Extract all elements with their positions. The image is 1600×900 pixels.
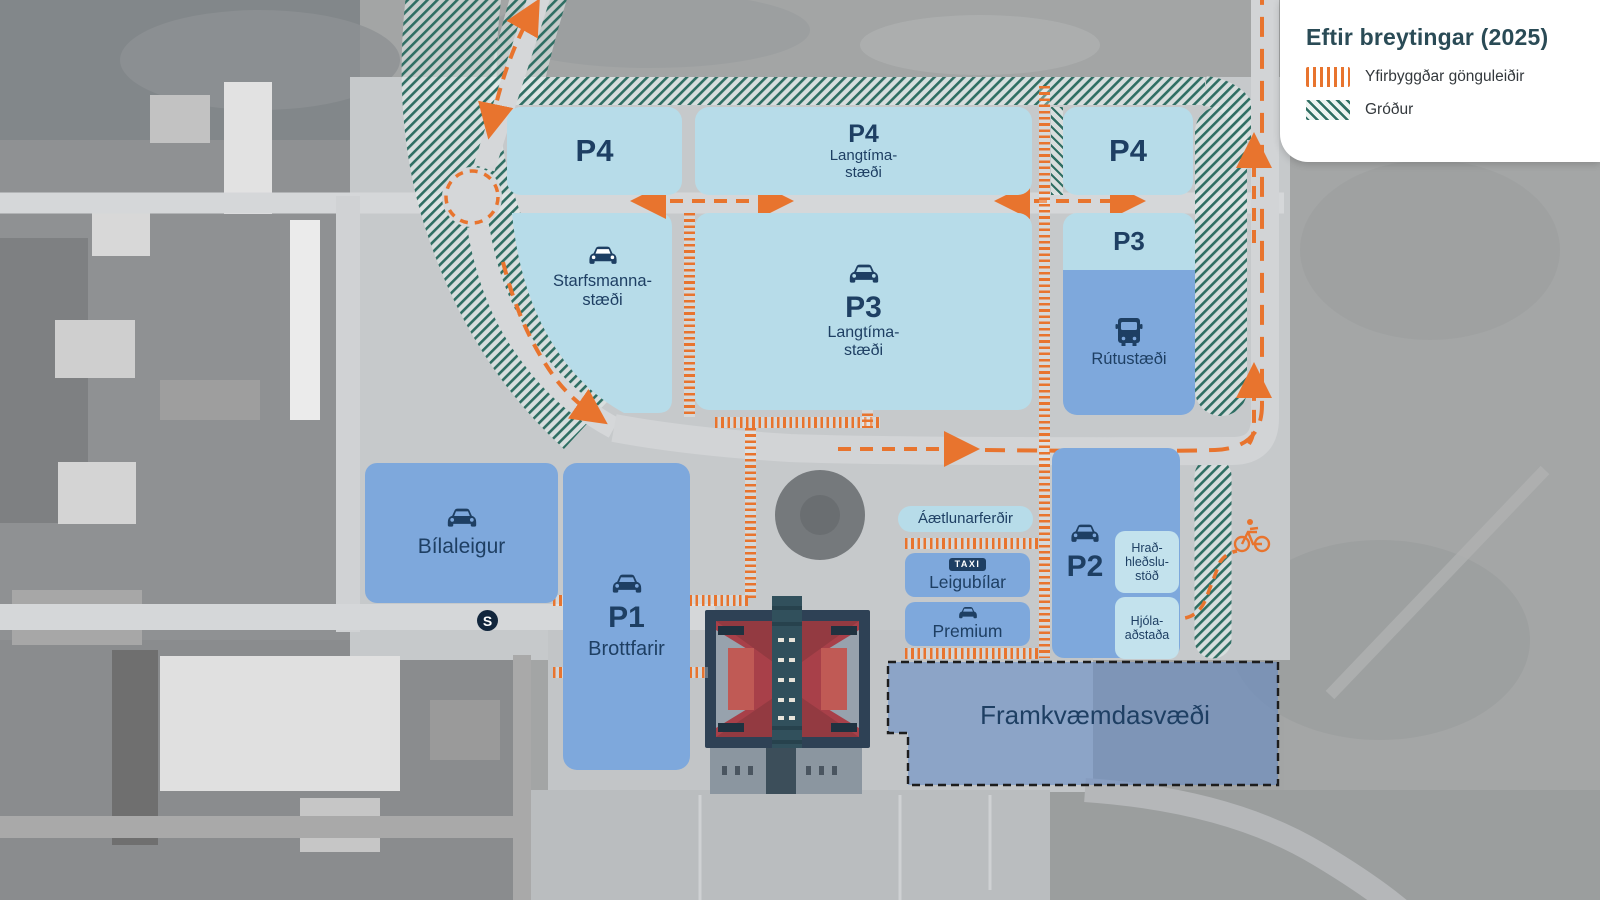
zone-p3-longterm: P3 Langtíma- stæði	[695, 213, 1032, 410]
bus-icon	[1114, 316, 1144, 346]
green-hatch-swatch	[1306, 100, 1350, 120]
car-icon	[586, 245, 620, 268]
construction-area-label: Framkvæmdasvæði	[930, 700, 1260, 731]
car-icon	[846, 263, 882, 287]
zone-staff-label: Starfsmanna- stæði	[535, 232, 670, 322]
zone-p2-label: P2	[1052, 523, 1118, 584]
zone-premium: Premium	[905, 602, 1030, 646]
walkway-east-spine	[1039, 86, 1050, 658]
zone-p4-right: P4	[1063, 107, 1193, 195]
walkway-premium	[905, 648, 1038, 659]
zone-taxi: TAXI Leigubílar	[905, 553, 1030, 597]
walkway-schedule	[905, 538, 1038, 549]
zone-bus-parking: Rútustæði	[1063, 270, 1195, 415]
walkway-p3-west	[684, 213, 695, 417]
zone-p4-left: P4	[507, 107, 682, 195]
zone-p1-departures: P1 Brottfarir	[563, 463, 690, 770]
zone-p3-right: P3	[1063, 213, 1195, 270]
orange-stripes-swatch	[1306, 67, 1350, 87]
legend-item-walkways: Yfirbyggðar gönguleiðir	[1306, 67, 1600, 87]
zone-bike-facility: Hjóla- aðstaða	[1115, 597, 1179, 659]
terminal-building	[705, 596, 870, 794]
zone-scheduled-transfers: Áætlunarferðir	[898, 506, 1033, 532]
legend-card: Eftir breytingar (2025) Yfirbyggðar göng…	[1280, 0, 1600, 162]
car-icon	[609, 573, 645, 597]
walkway-terminal-north	[745, 428, 756, 598]
car-icon	[444, 507, 480, 531]
zone-car-rental: Bílaleigur	[365, 463, 558, 603]
vegetation-strip	[1051, 107, 1063, 195]
taxi-sign-icon: TAXI	[949, 558, 987, 571]
zone-fast-charging: Hrað- hleðslu- stöð	[1115, 531, 1179, 593]
legend-title: Eftir breytingar (2025)	[1306, 24, 1600, 51]
airport-parking-map: P4 P4 Langtíma- stæði P4 Starfsmanna- st…	[0, 0, 1600, 900]
car-icon	[1068, 523, 1102, 546]
zone-p4-longterm: P4 Langtíma- stæði	[695, 107, 1032, 195]
car-icon	[957, 606, 979, 621]
stop-badge: S	[477, 610, 498, 631]
legend-item-vegetation: Gróður	[1306, 100, 1600, 120]
walkway-p3-south	[715, 417, 880, 428]
